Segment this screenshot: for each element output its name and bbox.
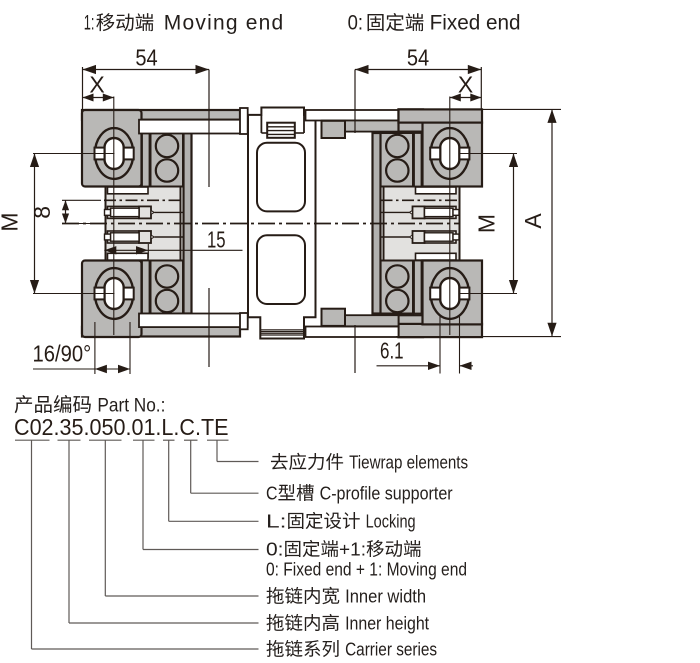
svg-text:Inner height: Inner height (345, 613, 429, 634)
svg-text:Fixed end: Fixed end (430, 12, 521, 35)
svg-text:0:: 0: (266, 539, 284, 560)
svg-text:0: Fixed end + 1: Moving end: 0: Fixed end + 1: Moving end (266, 559, 467, 580)
svg-text:A: A (520, 213, 546, 229)
svg-text:6.1: 6.1 (380, 337, 404, 363)
svg-text:54: 54 (135, 45, 157, 71)
svg-text:Moving end: Moving end (164, 12, 283, 35)
svg-text:C: C (266, 483, 278, 504)
svg-text:Inner width: Inner width (345, 586, 426, 607)
svg-text:16/90°: 16/90° (33, 341, 92, 367)
svg-text:Locking: Locking (366, 511, 416, 532)
svg-text:X: X (89, 72, 104, 98)
svg-text:15: 15 (207, 227, 226, 253)
svg-text:L:: L: (266, 511, 287, 532)
svg-text:C-profile supporter: C-profile supporter (320, 483, 453, 504)
svg-text:C02.35.050.01.L.C.TE: C02.35.050.01.L.C.TE (14, 414, 229, 440)
svg-text:Tiewrap elements: Tiewrap elements (349, 452, 468, 473)
svg-text:1:: 1: (84, 12, 95, 35)
svg-text:Carrier series: Carrier series (345, 639, 437, 660)
svg-text:M: M (474, 214, 500, 233)
svg-text:8: 8 (29, 206, 55, 219)
svg-text:0:: 0: (348, 12, 363, 35)
svg-text:54: 54 (407, 45, 429, 71)
svg-text:X: X (458, 72, 473, 98)
svg-text:+1:: +1: (339, 539, 366, 560)
svg-text:M: M (0, 212, 23, 231)
